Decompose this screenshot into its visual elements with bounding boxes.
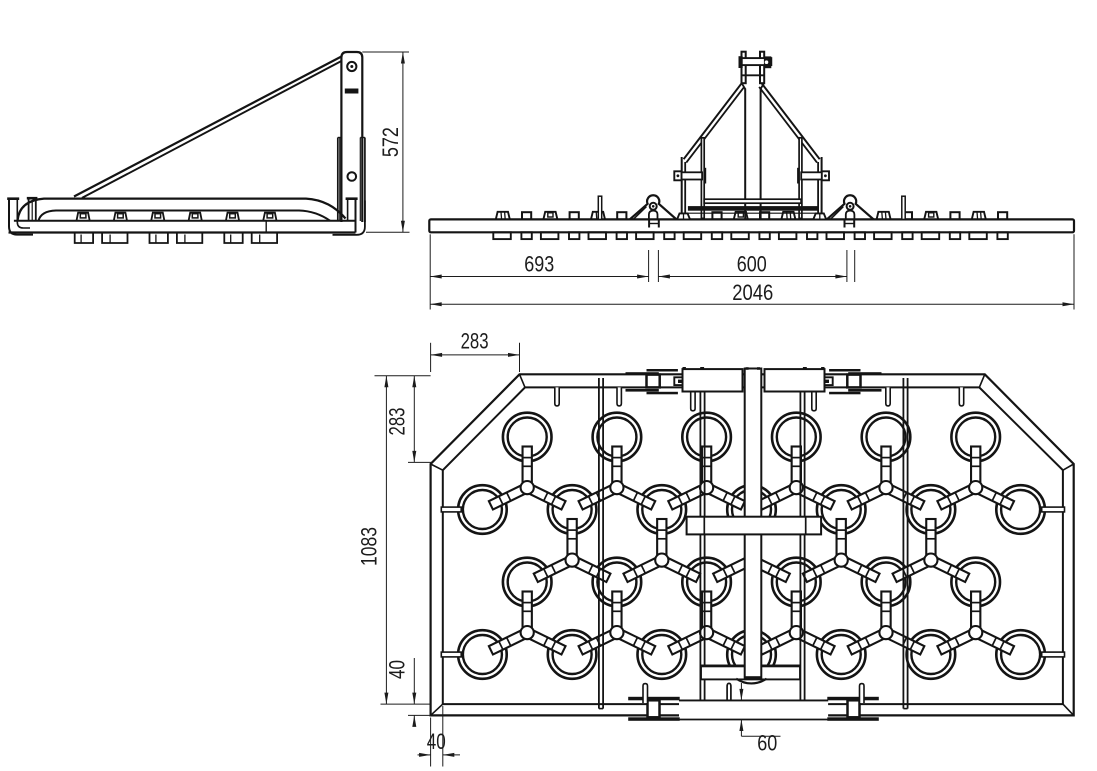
svg-text:600: 600 <box>737 251 767 276</box>
svg-text:1083: 1083 <box>357 527 382 566</box>
svg-text:572: 572 <box>378 127 403 157</box>
svg-text:60: 60 <box>757 730 777 755</box>
svg-text:693: 693 <box>524 251 554 276</box>
svg-text:40: 40 <box>385 660 410 679</box>
svg-text:2046: 2046 <box>732 280 773 305</box>
svg-text:283: 283 <box>385 408 410 436</box>
svg-text:283: 283 <box>461 329 489 354</box>
svg-text:40: 40 <box>427 729 446 754</box>
